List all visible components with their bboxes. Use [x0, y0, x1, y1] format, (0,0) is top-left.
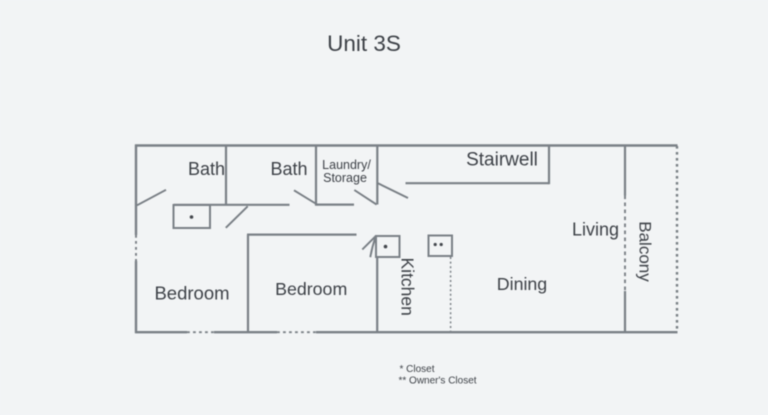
svg-text:Storage: Storage — [323, 171, 367, 185]
svg-text:Balcony: Balcony — [636, 221, 655, 282]
svg-text:** Owner's Closet: ** Owner's Closet — [399, 376, 477, 387]
svg-text:Dining: Dining — [497, 274, 547, 294]
svg-text:Stairwell: Stairwell — [466, 150, 538, 171]
svg-text:Living: Living — [572, 220, 619, 240]
svg-text:Bedroom: Bedroom — [275, 279, 347, 299]
svg-text:* Closet: * Closet — [400, 364, 435, 375]
svg-text:Unit 3S: Unit 3S — [327, 31, 401, 56]
svg-text:Kitchen: Kitchen — [398, 258, 418, 316]
svg-text:Bath: Bath — [188, 159, 225, 179]
svg-text:Laundry/: Laundry/ — [322, 158, 371, 172]
svg-text:Bedroom: Bedroom — [154, 283, 229, 304]
svg-text:Bath: Bath — [270, 159, 307, 179]
